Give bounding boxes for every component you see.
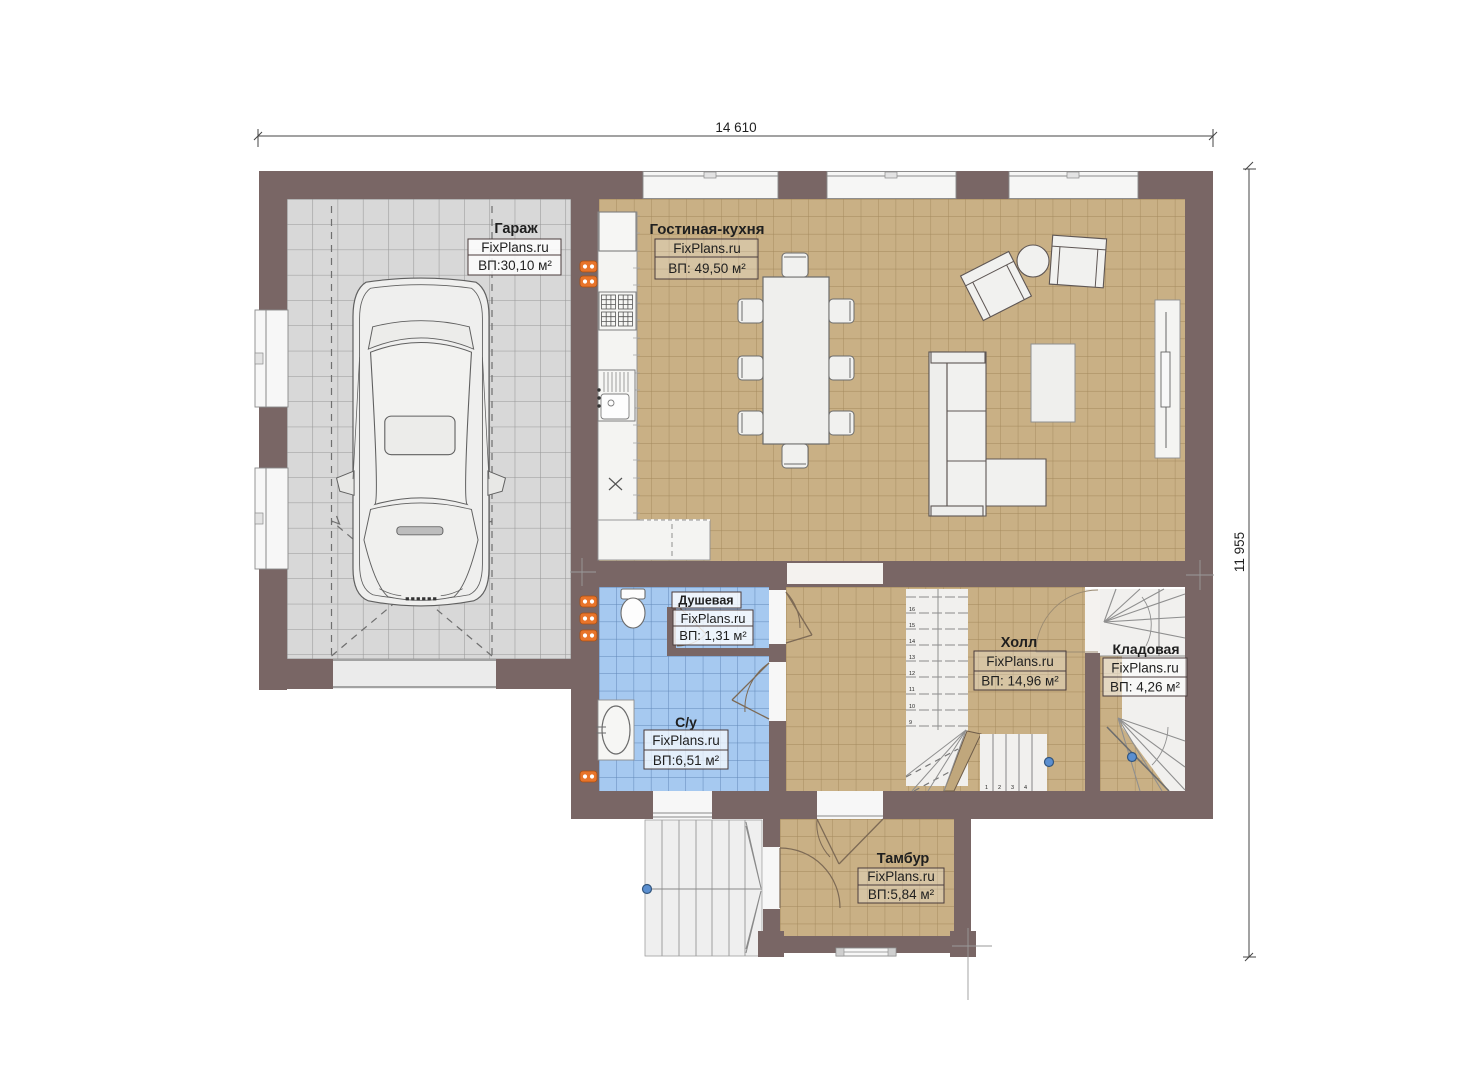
svg-text:Тамбур: Тамбур <box>877 851 930 867</box>
svg-text:FixPlans.ru: FixPlans.ru <box>867 869 935 884</box>
svg-text:Гостиная-кухня: Гостиная-кухня <box>650 221 765 238</box>
svg-text:15: 15 <box>909 623 915 629</box>
svg-text:9: 9 <box>909 720 912 726</box>
svg-text:ВП: 4,26 м²: ВП: 4,26 м² <box>1110 680 1181 695</box>
svg-text:10: 10 <box>909 704 915 710</box>
svg-text:ВП: 1,31 м²: ВП: 1,31 м² <box>679 628 747 643</box>
svg-text:ВП:30,10 м²: ВП:30,10 м² <box>478 258 552 273</box>
svg-text:FixPlans.ru: FixPlans.ru <box>986 654 1054 669</box>
svg-text:С/у: С/у <box>675 714 697 730</box>
svg-text:ВП:6,51 м²: ВП:6,51 м² <box>653 753 720 768</box>
svg-text:Кладовая: Кладовая <box>1112 641 1179 657</box>
svg-text:1: 1 <box>985 785 988 791</box>
svg-text:ВП: 14,96 м²: ВП: 14,96 м² <box>981 674 1059 689</box>
svg-text:12: 12 <box>909 671 915 677</box>
svg-text:11 955: 11 955 <box>1232 532 1247 572</box>
svg-text:FixPlans.ru: FixPlans.ru <box>652 733 720 748</box>
svg-text:FixPlans.ru: FixPlans.ru <box>680 611 745 626</box>
svg-text:11: 11 <box>909 687 915 693</box>
svg-text:Душевая: Душевая <box>678 594 733 608</box>
svg-text:14: 14 <box>909 639 915 645</box>
svg-text:2: 2 <box>998 785 1001 791</box>
svg-text:13: 13 <box>909 655 915 661</box>
svg-text:ВП: 49,50 м²: ВП: 49,50 м² <box>668 261 746 276</box>
svg-text:4: 4 <box>1024 785 1027 791</box>
svg-text:ВП:5,84 м²: ВП:5,84 м² <box>868 887 935 902</box>
svg-text:3: 3 <box>1011 785 1014 791</box>
svg-text:Гараж: Гараж <box>494 221 538 237</box>
svg-text:FixPlans.ru: FixPlans.ru <box>481 240 549 255</box>
svg-text:Холл: Холл <box>1001 635 1037 651</box>
svg-text:16: 16 <box>909 607 915 613</box>
svg-text:FixPlans.ru: FixPlans.ru <box>1111 661 1179 676</box>
svg-text:14 610: 14 610 <box>715 120 756 135</box>
svg-text:FixPlans.ru: FixPlans.ru <box>673 241 741 256</box>
